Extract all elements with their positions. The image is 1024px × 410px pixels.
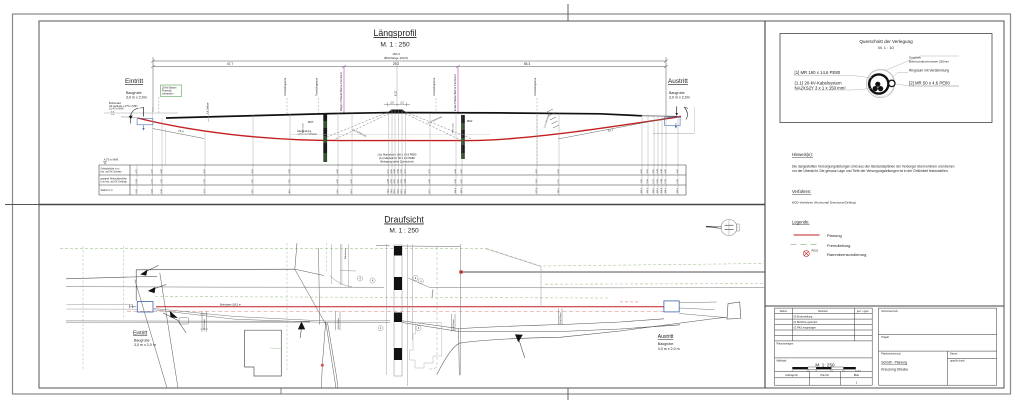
svg-text:20-kV-Kabel: 20-kV-Kabel [453,319,455,331]
svg-text:135,1: 135,1 [558,187,560,193]
svg-text:20-kV-Kabel: 20-kV-Kabel [204,319,206,331]
svg-text:Flurstücksgrenze: Flurstücksgrenze [284,77,287,96]
svg-text:155,5: 155,5 [657,187,659,193]
svg-text:152,2: 152,2 [647,187,649,193]
svg-text:M. 1 : 10: M. 1 : 10 [878,45,894,50]
svg-text:M. 1 : 250: M. 1 : 250 [389,228,419,235]
svg-text:Planung: Planung [827,233,842,238]
svg-text:[1] MR 160 x 14,6 PE80: [1] MR 160 x 14,6 PE80 [795,70,841,75]
svg-text:(1x) Mantelrohr 50 x 4,6 PE80: (1x) Mantelrohr 50 x 4,6 PE80 [379,156,415,160]
svg-text:154,2: 154,2 [653,187,655,193]
svg-text:Flurstücksgrenze: Flurstücksgrenze [433,77,436,96]
svg-text:3,0 m x 2,0m: 3,0 m x 2,0m [126,96,147,100]
svg-text:nur der Übersicht. Die genaue: nur der Übersicht. Die genaue Lage und T… [792,169,949,173]
svg-text:160,3: 160,3 [677,187,679,193]
svg-text:Baugrube: Baugrube [669,91,685,95]
svg-text:Plan-Nr.: Plan-Nr. [820,374,829,377]
svg-text:150,2: 150,2 [641,187,643,193]
svg-text:Blatt: Blatt [854,374,859,377]
svg-text:M. 1 : 250: M. 1 : 250 [380,42,410,49]
svg-text:Bohrtrasse 160,3 m: Bohrtrasse 160,3 m [220,303,241,306]
svg-text:Legende:: Legende: [792,220,809,225]
svg-text:~4,5 m im Scheitel: ~4,5 m im Scheitel [297,133,317,136]
svg-text:3,0 m x 2,0m: 3,0 m x 2,0m [669,96,690,100]
svg-text:Ende Pflasterfläche Fahrbahn: Ende Pflasterfläche Fahrbahn [453,74,457,111]
svg-text:(1x) Mantelrohr 160 x 14,6 PE8: (1x) Mantelrohr 160 x 14,6 PE80 [378,153,417,157]
svg-text:01 Bohrlinie geändert: 01 Bohrlinie geändert [794,321,818,324]
svg-text:Eintritt: Eintritt [125,78,143,85]
svg-text:Ringraum mit Verdämmung: Ringraum mit Verdämmung [909,69,949,73]
svg-text:Station in m: Station in m [101,189,113,192]
svg-text:in m bez. auf OK Gelände: in m bez. auf OK Gelände [101,181,128,183]
svg-text:M. 1: 250: M. 1: 250 [815,362,835,367]
svg-text:(Bohrlänge 160,5): (Bohrlänge 160,5) [384,56,408,60]
svg-text:100,9: 100,9 [455,187,457,193]
svg-text:3,0 m x 2,0 m: 3,0 m x 2,0 m [134,343,156,347]
svg-text:Maßstab: Maßstab [777,360,787,363]
svg-text:Schutzvermerk: Schutzvermerk [881,310,898,313]
svg-text:Belegung siehe Querschnitt: Belegung siehe Querschnitt [380,160,413,164]
svg-text:Verfahren:: Verfahren: [792,189,811,194]
svg-text:Planbezeichnung: Planbezeichnung [881,352,901,355]
svg-text:47,7: 47,7 [227,62,233,66]
svg-text:Datum: Datum [780,310,787,313]
svg-text:Beginn Pflasterfläche Fahrbahn: Beginn Pflasterfläche Fahrbahn [339,71,343,111]
svg-text:Flurstücksgrenze: Flurstücksgrenze [316,77,319,96]
svg-text:12,5m: 12,5m [855,370,861,372]
svg-text:156,8: 156,8 [661,187,663,193]
svg-text:Fremdleitung: Fremdleitung [827,243,850,248]
svg-text:Die dargestellten Versorgungsl: Die dargestellten Versorgungsleitungen s… [792,165,955,169]
svg-text:Bahnhofstr.: Bahnhofstr. [344,248,347,259]
svg-text:Projekt: Projekt [881,336,889,339]
svg-text:Schnitt - Planung: Schnitt - Planung [881,361,907,365]
svg-text:20-kV-Kabel: 20-kV-Kabel [338,318,340,330]
svg-text:Auftrags-Nr.: Auftrags-Nr. [785,374,799,377]
svg-text:Eintritt: Eintritt [133,331,148,337]
svg-text:Datum: Datum [950,352,957,355]
svg-text:29,2: 29,2 [393,62,399,66]
svg-text:102,9: 102,9 [461,187,463,193]
svg-text:Flurstücksgrenze: Flurstücksgrenze [534,77,537,96]
svg-text:02 RKS eingetragen: 02 RKS eingetragen [794,326,817,329]
svg-text:20-kV-Kabel: 20-kV-Kabel [560,312,562,324]
svg-text:0,4 Telekom: 0,4 Telekom [207,102,209,114]
svg-text:vorhanden: vorhanden [162,93,174,96]
svg-text:Planunterlagen: Planunterlagen [777,343,794,346]
svg-text:Kreuzung Strecke: Kreuzung Strecke [881,368,908,372]
svg-text:12: 12 [111,110,115,114]
svg-text:Draufsicht: Draufsicht [384,215,424,225]
svg-text:NA2XS2Y 3 x 1 x 150 mm²: NA2XS2Y 3 x 1 x 150 mm² [795,85,847,90]
svg-text:RKS 2,0m: RKS 2,0m [453,123,455,133]
svg-text:Längsprofil: Längsprofil [373,28,416,38]
svg-text:Baugrube: Baugrube [126,91,142,95]
svg-text:Querschnitt der Verlegung: Querschnitt der Verlegung [859,39,913,44]
svg-text:geplante Rohrsohlenhöhe: geplante Rohrsohlenhöhe [101,177,128,180]
svg-text:Austritt: Austritt [668,78,688,85]
svg-text:Gehweg: Gehweg [432,289,434,298]
svg-text:127,8: 127,8 [536,187,538,193]
svg-text:geprüft durch: geprüft durch [950,360,965,363]
svg-text:55,3: 55,3 [524,62,530,66]
svg-text:B07: B07 [308,120,314,124]
svg-text:158,1: 158,1 [665,187,667,193]
svg-text:B02: B02 [467,119,473,123]
svg-text:Austritt: Austritt [658,334,674,340]
svg-text:Baugrube: Baugrube [134,338,150,342]
svg-text:Bohrlochdurchmesser 250mm: Bohrlochdurchmesser 250mm [909,59,950,63]
svg-text:Hinweis(e):: Hinweis(e): [792,152,813,157]
svg-text:HDD-Verfahren (Horizontal Dire: HDD-Verfahren (Horizontal Directional Dr… [792,201,856,205]
svg-text:Rammkernsondierung: Rammkernsondierung [827,252,866,257]
svg-text:00 Ersterstellung: 00 Ersterstellung [794,316,813,319]
svg-text:Geländehöhe in m: Geländehöhe in m [101,168,120,170]
svg-text:Baugrube: Baugrube [658,342,674,346]
svg-text:RKS1: RKS1 [812,249,819,253]
svg-text:4,75 m NHN: 4,75 m NHN [104,158,118,162]
svg-text:[2] MR 50 x 4,6 PE80: [2] MR 50 x 4,6 PE80 [909,81,950,86]
svg-text:Revision: Revision [818,310,828,313]
svg-text:RKS 2,0m: RKS 2,0m [303,123,305,133]
svg-text:gez. / gepr.: gez. / gepr. [857,310,870,313]
svg-text:3,0 m x 2,0 m: 3,0 m x 2,0 m [658,347,680,351]
svg-text:bez. auf OK Schnitte: bez. auf OK Schnitte [101,170,123,173]
